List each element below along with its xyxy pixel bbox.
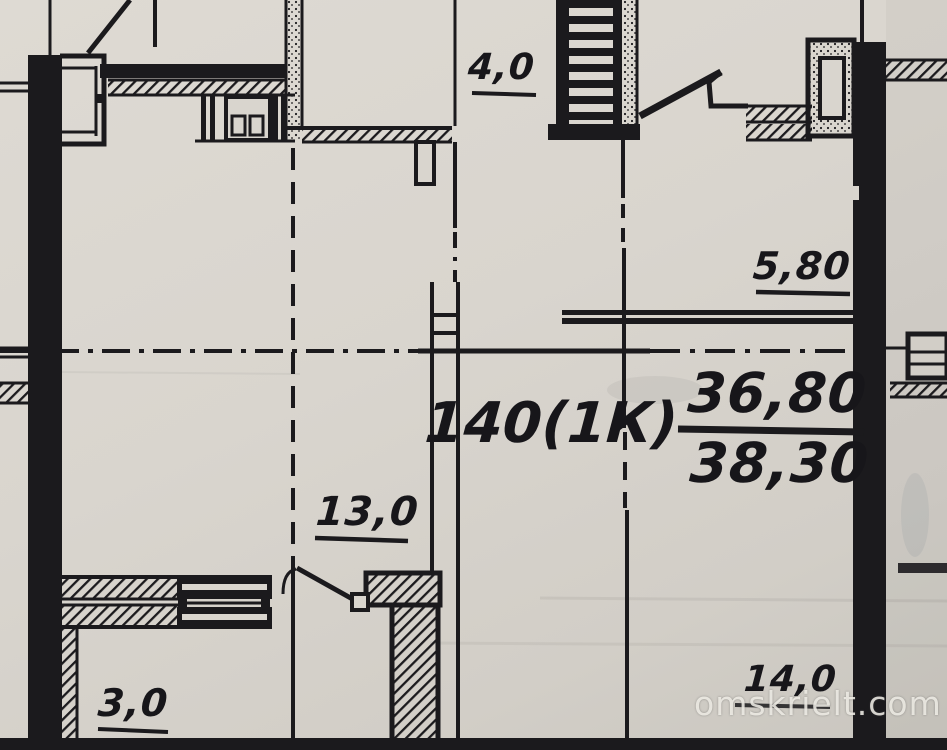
floor-plan-scan: 4,0 5,80 140(1К) 36,80 38,30 13,0 3,0 14… [0,0,947,750]
corner-wall [366,573,440,743]
dim-top-label: 4,0 [467,50,536,86]
scan-shading [886,0,947,750]
area-total-label: 38,30 [688,436,871,491]
window-left [60,56,104,144]
watermark: omskrielt.com [694,687,942,720]
area-living-label: 36,80 [686,366,869,421]
bathroom-fixtures [195,95,295,141]
dim-kitchen-label: 13,0 [315,492,421,532]
loggia-glazing [562,310,853,324]
balcony-window-door [177,568,368,629]
vent-shaft [808,40,854,136]
dim-balcony-label: 3,0 [97,684,170,722]
dim-glazing-label: 5,80 [752,247,852,285]
apartment-number-label: 140(1К) [423,396,680,452]
stairs [548,0,640,140]
